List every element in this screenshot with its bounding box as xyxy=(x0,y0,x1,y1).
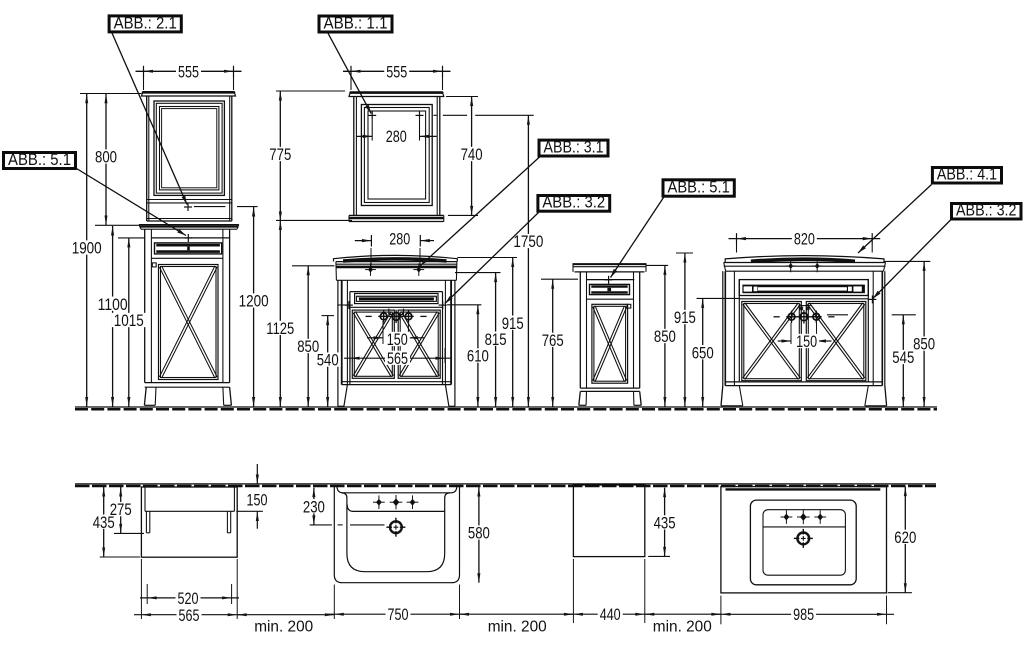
svg-text:565: 565 xyxy=(387,349,408,368)
svg-text:ABB.: 4.1: ABB.: 4.1 xyxy=(937,165,997,184)
svg-text:ABB.: 5.1: ABB.: 5.1 xyxy=(668,178,730,197)
svg-text:620: 620 xyxy=(894,528,916,547)
svg-text:150: 150 xyxy=(387,330,408,349)
svg-text:820: 820 xyxy=(794,230,815,249)
svg-text:ABB.: 3.2: ABB.: 3.2 xyxy=(542,193,605,212)
svg-text:280: 280 xyxy=(386,127,407,146)
svg-text:1750: 1750 xyxy=(513,232,543,251)
svg-text:ABB.: 3.1: ABB.: 3.1 xyxy=(544,138,604,157)
svg-text:555: 555 xyxy=(178,62,199,81)
svg-text:580: 580 xyxy=(468,524,490,543)
svg-text:915: 915 xyxy=(674,308,696,327)
svg-text:1015: 1015 xyxy=(114,311,144,330)
svg-text:565: 565 xyxy=(179,606,200,625)
svg-text:275: 275 xyxy=(110,500,132,519)
svg-text:850: 850 xyxy=(913,335,935,354)
svg-text:545: 545 xyxy=(892,348,914,367)
svg-text:540: 540 xyxy=(317,351,339,370)
svg-text:min. 200: min. 200 xyxy=(653,619,712,636)
svg-text:435: 435 xyxy=(654,514,676,533)
svg-text:min. 200: min. 200 xyxy=(254,619,313,636)
svg-text:1200: 1200 xyxy=(239,292,269,311)
svg-text:555: 555 xyxy=(386,62,407,81)
svg-text:ABB.: 5.1: ABB.: 5.1 xyxy=(8,150,71,169)
svg-text:850: 850 xyxy=(654,327,676,346)
svg-text:915: 915 xyxy=(502,314,524,333)
svg-text:610: 610 xyxy=(467,347,489,366)
svg-text:650: 650 xyxy=(692,343,714,362)
svg-text:230: 230 xyxy=(303,497,325,516)
svg-text:440: 440 xyxy=(600,605,621,624)
svg-text:ABB.: 3.2: ABB.: 3.2 xyxy=(956,201,1017,220)
svg-text:740: 740 xyxy=(461,145,483,164)
svg-text:1125: 1125 xyxy=(266,319,294,338)
svg-text:800: 800 xyxy=(95,148,117,167)
svg-text:ABB.: 2.1: ABB.: 2.1 xyxy=(114,13,177,32)
svg-text:ABB.: 1.1: ABB.: 1.1 xyxy=(324,14,388,33)
svg-text:750: 750 xyxy=(388,605,409,624)
svg-text:150: 150 xyxy=(796,332,817,351)
svg-text:1900: 1900 xyxy=(72,239,102,258)
svg-text:min. 200: min. 200 xyxy=(488,619,547,636)
svg-text:765: 765 xyxy=(542,331,564,350)
svg-text:150: 150 xyxy=(247,490,268,509)
svg-text:280: 280 xyxy=(389,230,410,249)
svg-text:775: 775 xyxy=(269,145,291,164)
svg-text:985: 985 xyxy=(793,605,814,624)
